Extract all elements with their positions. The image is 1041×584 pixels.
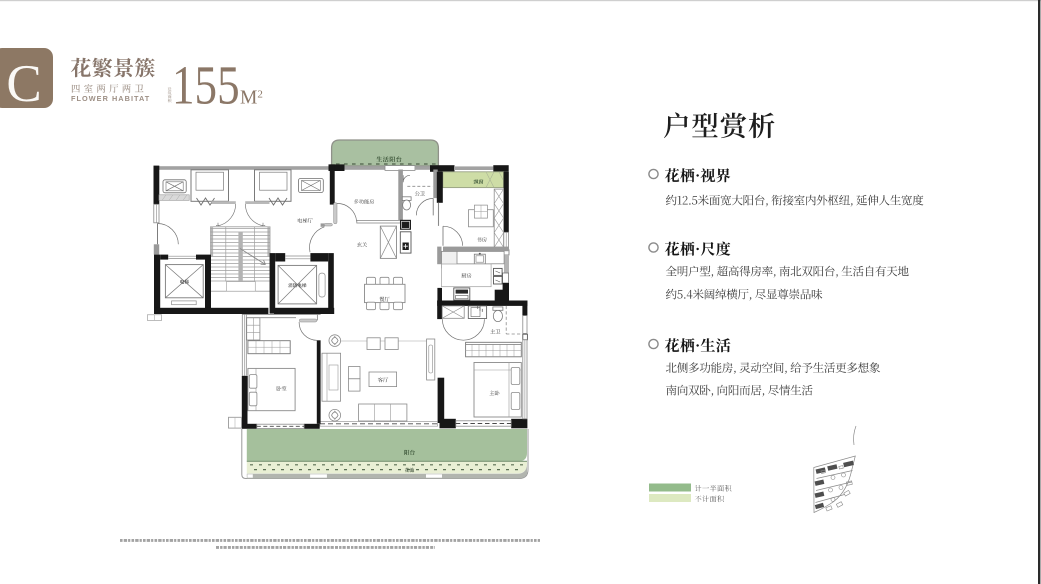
svg-text:FLOWER HABITAT: FLOWER HABITAT: [71, 94, 150, 103]
svg-text:155: 155: [172, 54, 240, 115]
svg-text:M2: M2: [240, 88, 263, 109]
svg-text:C: C: [6, 55, 41, 113]
